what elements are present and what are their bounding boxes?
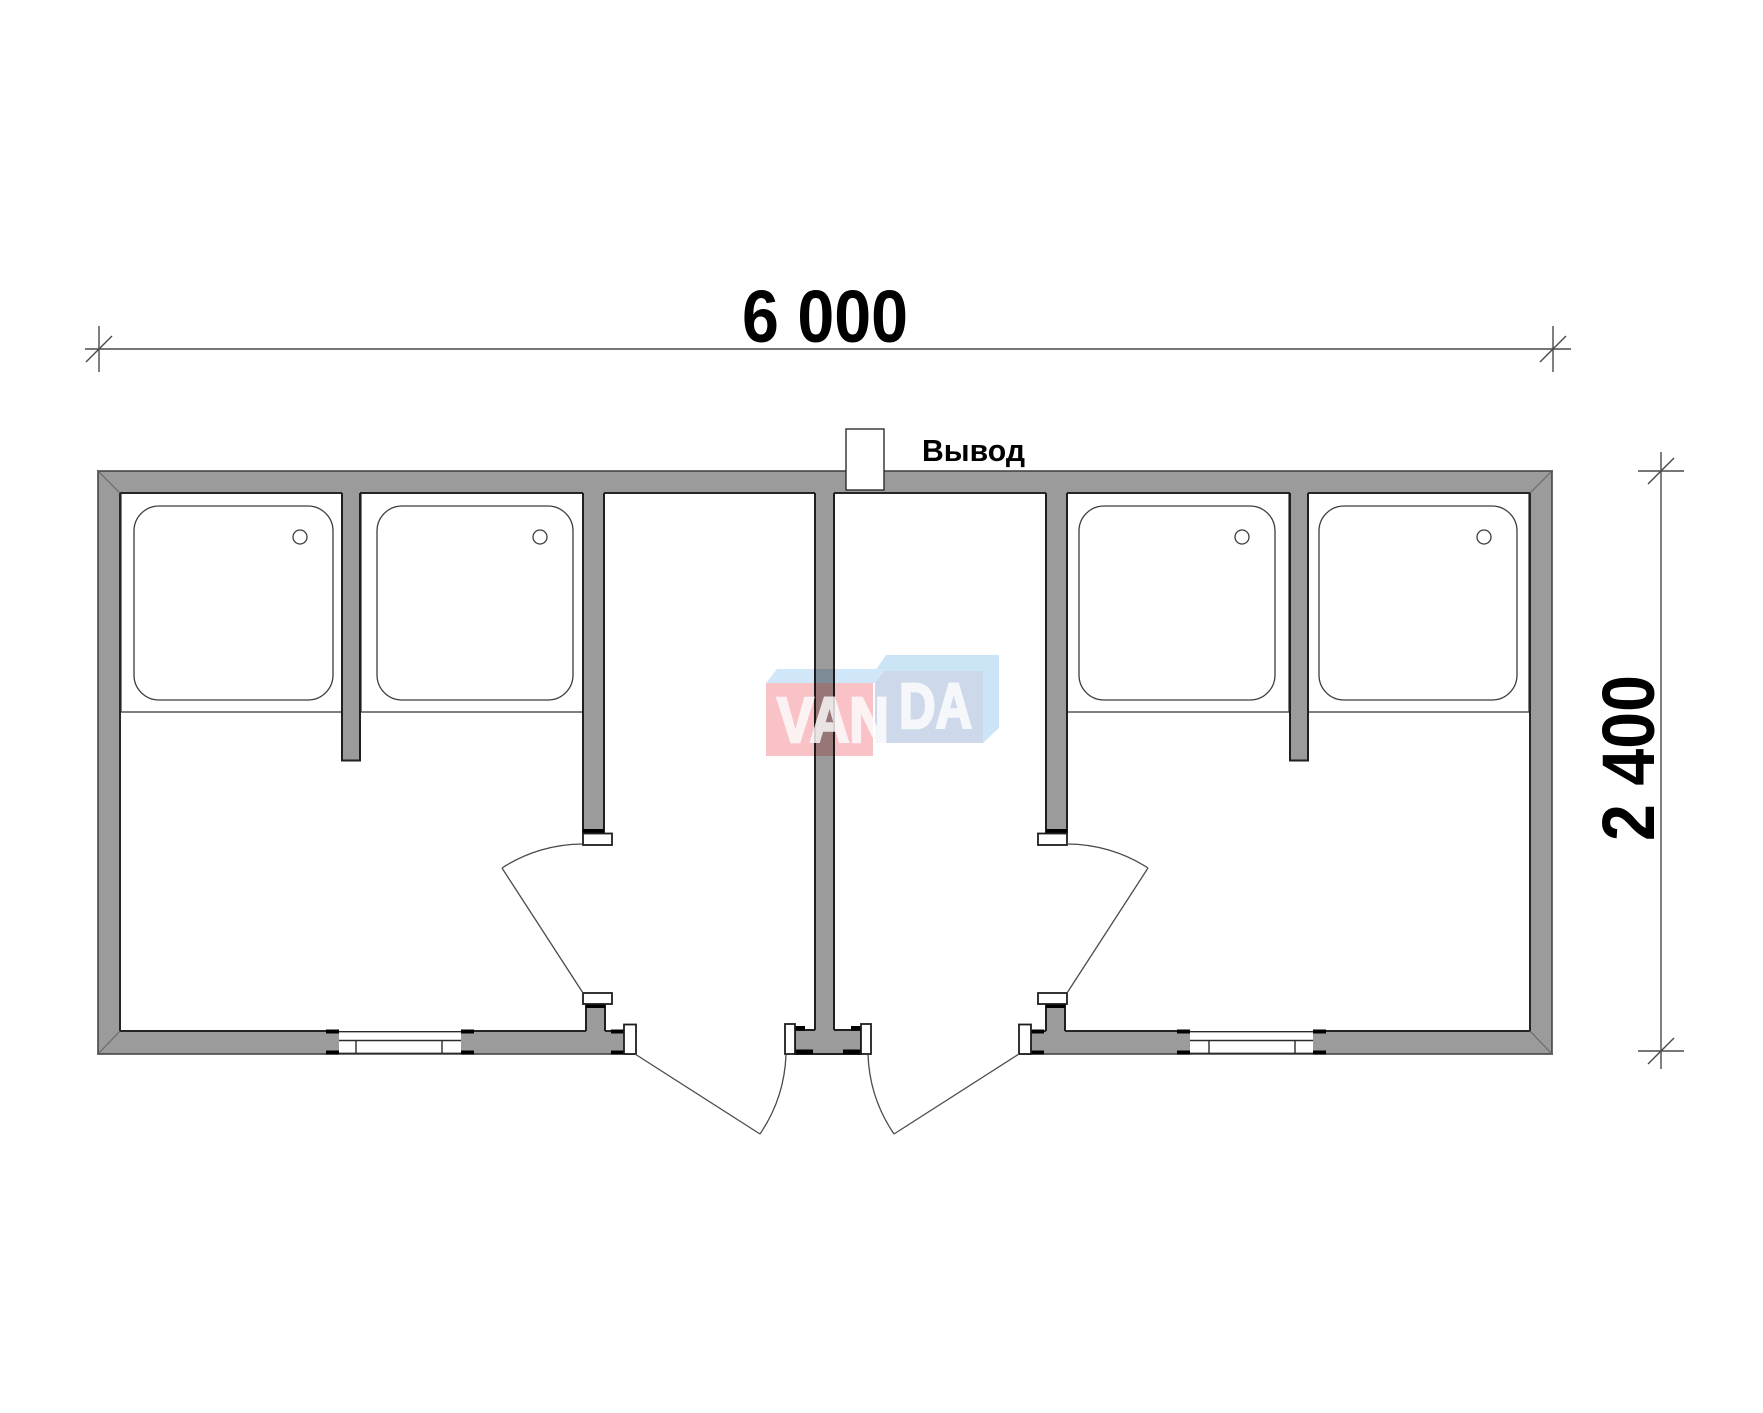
svg-text:2 400: 2 400 xyxy=(1587,675,1670,841)
svg-text:Вывод: Вывод xyxy=(922,433,1025,468)
svg-text:6 000: 6 000 xyxy=(742,275,908,358)
svg-text:VAN: VAN xyxy=(777,684,889,756)
svg-text:DA: DA xyxy=(899,670,972,742)
